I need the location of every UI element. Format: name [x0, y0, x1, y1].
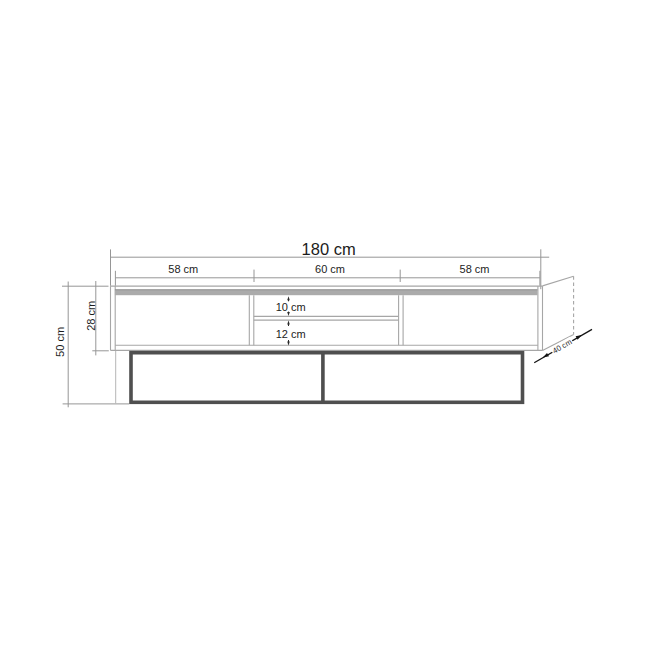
svg-text:58 cm: 58 cm — [460, 263, 490, 275]
svg-text:50 cm: 50 cm — [54, 327, 66, 357]
svg-text:180 cm: 180 cm — [302, 240, 356, 258]
svg-text:58 cm: 58 cm — [168, 263, 198, 275]
svg-text:10 cm: 10 cm — [276, 301, 306, 313]
svg-text:60 cm: 60 cm — [315, 263, 345, 275]
svg-text:28 cm: 28 cm — [85, 301, 97, 331]
svg-text:12 cm: 12 cm — [276, 328, 306, 340]
